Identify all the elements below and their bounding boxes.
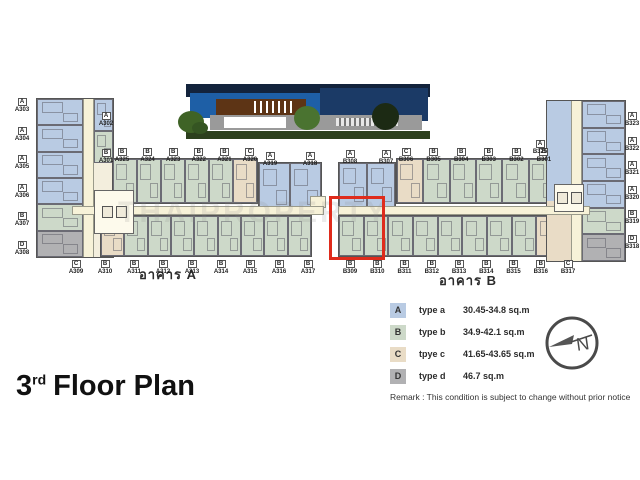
- unit-cell: [37, 231, 83, 257]
- unit-type-badge: B: [246, 260, 255, 268]
- unit-cell: [185, 159, 209, 203]
- unit-cell: [582, 128, 625, 155]
- unit-number: B308: [343, 159, 357, 165]
- unit-type-badge: B: [220, 148, 229, 156]
- unit-tag: C A309: [66, 260, 86, 275]
- unit-number: B309: [343, 269, 357, 275]
- elevator-icon: [571, 192, 582, 204]
- building-b-bottom-unit-tags: B B309 B B310 B B311 B B312: [340, 260, 578, 275]
- unit-number: A314: [214, 269, 228, 275]
- unit-tag: B B302: [506, 148, 526, 163]
- unit-type-badge: A: [536, 140, 545, 148]
- unit-number: B305: [426, 157, 440, 163]
- unit-cell: [423, 159, 449, 203]
- unit-cell: [502, 159, 528, 203]
- unit-type-badge: B: [194, 148, 203, 156]
- unit-number: A320: [243, 157, 257, 163]
- unit-tag: B A312: [153, 260, 173, 275]
- compass-north-icon: N: [543, 314, 601, 372]
- unit-number: B321: [625, 170, 639, 176]
- unit-number: B317: [561, 269, 575, 275]
- unit-type-badge: C: [245, 148, 254, 156]
- unit-type-badge: B: [429, 148, 438, 156]
- unit-tag: B B319: [622, 210, 640, 225]
- unit-tag: A B308: [340, 150, 360, 165]
- unit-number: B325: [533, 149, 547, 155]
- unit-type-badge: B: [101, 260, 110, 268]
- legend-color-swatch: D: [390, 369, 406, 384]
- unit-number: A322: [192, 157, 206, 163]
- unit-number: B313: [452, 269, 466, 275]
- legend-size-range: 30.45-34.8 sq.m: [463, 305, 530, 315]
- unit-type-badge: A: [266, 152, 275, 160]
- unit-number: B322: [625, 146, 639, 152]
- building-b-east-units: [582, 101, 625, 261]
- unit-tag: B A325: [112, 148, 132, 163]
- legend-type-label: type d: [419, 371, 463, 381]
- tree-icon: [294, 106, 320, 130]
- unit-tag: B A311: [124, 260, 144, 275]
- unit-cell: [194, 216, 217, 256]
- unit-cell: [37, 152, 83, 178]
- unit-number: A308: [15, 250, 29, 256]
- unit-number: A318: [303, 161, 317, 167]
- unit-tag: B B316: [531, 260, 551, 275]
- unit-type-badge: A: [102, 112, 111, 120]
- bush-icon: [192, 122, 208, 134]
- unit-cell: [288, 216, 311, 256]
- unit-cell: [582, 154, 625, 181]
- unit-type-badge: C: [402, 148, 411, 156]
- corridor: [571, 101, 582, 261]
- unit-type-badge: B: [427, 260, 436, 268]
- unit-tag: C B317: [558, 260, 578, 275]
- unit-cell: [476, 159, 502, 203]
- unit-number: B307: [379, 159, 393, 165]
- unit-type-badge: B: [304, 260, 313, 268]
- unit-tag: A A319: [260, 152, 280, 167]
- unit-cell: [218, 216, 241, 256]
- unit-tag: A A305: [12, 155, 32, 170]
- unit-type-badge: B: [400, 260, 409, 268]
- unit-tag: B A324: [138, 148, 158, 163]
- unit-number: B310: [370, 269, 384, 275]
- legend-type-label: tpye c: [419, 349, 463, 359]
- unit-tag: A A306: [12, 184, 32, 199]
- building-b-wing-right-unit-tags: A B323 A B322 A B321 A B320: [622, 112, 640, 250]
- unit-type-badge: B: [455, 260, 464, 268]
- unit-number: B301: [537, 157, 551, 163]
- unit-tag: A A318: [300, 152, 320, 167]
- legend-row: B type b 34.9-42.1 sq.m: [390, 323, 550, 341]
- svg-text:N: N: [575, 333, 591, 355]
- unit-number: B319: [625, 219, 639, 225]
- unit-cell: [241, 216, 264, 256]
- unit-cell: [37, 99, 83, 125]
- unit-number: B318: [625, 244, 639, 250]
- unit-number: B320: [625, 195, 639, 201]
- unit-cell: [233, 159, 257, 203]
- floor-number: 3: [16, 370, 32, 402]
- unit-type-badge: B: [536, 260, 545, 268]
- building-a-elevator-core: [94, 190, 134, 234]
- unit-cell: [413, 216, 438, 256]
- building-b-vertical-wing: [546, 100, 626, 262]
- unit-cell: [582, 101, 625, 128]
- unit-tag: A B323: [622, 112, 640, 127]
- elevator-icon: [116, 206, 127, 218]
- unit-number: A315: [243, 269, 257, 275]
- unit-type-badge: B: [484, 148, 493, 156]
- unit-type-badge: B: [217, 260, 226, 268]
- building-b-top-row-units: [396, 158, 556, 204]
- legend-size-range: 34.9-42.1 sq.m: [463, 327, 525, 337]
- unit-cell: [37, 178, 83, 204]
- unit-cell: [148, 216, 171, 256]
- unit-tag: B B312: [422, 260, 442, 275]
- unit-tag: B B313: [449, 260, 469, 275]
- unit-type-badge: B: [628, 210, 637, 218]
- unit-number: A319: [263, 161, 277, 167]
- unit-type-badge: B: [169, 148, 178, 156]
- unit-type-badge: A: [18, 155, 27, 163]
- unit-cell: [259, 163, 290, 211]
- building-b-elevator-core: [554, 184, 584, 212]
- unit-type-badge: A: [382, 150, 391, 158]
- unit-tag: A B321: [622, 161, 640, 176]
- unit-number: A307: [15, 221, 29, 227]
- unit-type-badge: B: [18, 212, 27, 220]
- unit-number: A317: [301, 269, 315, 275]
- unit-type-badge: A: [346, 150, 355, 158]
- unit-tag: B B304: [451, 148, 471, 163]
- unit-type-badge: B: [482, 260, 491, 268]
- unit-type-badge: A: [628, 186, 637, 194]
- unit-type-badge: A: [306, 152, 315, 160]
- unit-number: A304: [15, 136, 29, 142]
- building-b-end-unit-tags: A B308 A B307: [340, 150, 396, 165]
- unit-number: A302: [99, 121, 113, 127]
- unit-number: B303: [482, 157, 496, 163]
- unit-tag: B B311: [395, 260, 415, 275]
- unit-number: A305: [15, 164, 29, 170]
- unit-tag: B B303: [479, 148, 499, 163]
- building-a-end-unit-tags: A A319 A A318: [260, 152, 320, 167]
- unit-number: A313: [185, 269, 199, 275]
- unit-cell: [209, 159, 233, 203]
- unit-type-badge: B: [512, 148, 521, 156]
- unit-tag: A B322: [622, 137, 640, 152]
- unit-cell: [171, 216, 194, 256]
- unit-number: B316: [534, 269, 548, 275]
- unit-cell: [582, 181, 625, 208]
- unit-number: A324: [140, 157, 154, 163]
- page-title: 3rdFloor Plan: [16, 370, 195, 403]
- unit-type-badge: B: [102, 149, 111, 157]
- unit-tag: B A310: [95, 260, 115, 275]
- legend-color-swatch: C: [390, 347, 406, 362]
- unit-number: A310: [98, 269, 112, 275]
- unit-type-badge: B: [159, 260, 168, 268]
- unit-number: A325: [115, 157, 129, 163]
- unit-cell: [512, 216, 537, 256]
- unit-tag: B A323: [163, 148, 183, 163]
- floor-plan-text: Floor Plan: [53, 370, 195, 402]
- unit-tag: B B310: [367, 260, 387, 275]
- unit-tag: B A307: [12, 212, 32, 227]
- legend-row: D type d 46.7 sq.m: [390, 367, 550, 385]
- unit-tag: B B305: [424, 148, 444, 163]
- unit-number: B314: [479, 269, 493, 275]
- unit-tag: B A317: [298, 260, 318, 275]
- floor-plan-page: THAIPROPERTY A A303 A A304 A A305: [0, 0, 640, 480]
- rendering-pergola: [254, 101, 296, 113]
- rendering-hedge: [186, 131, 430, 139]
- unit-cell: [397, 159, 423, 203]
- unit-tag: B B309: [340, 260, 360, 275]
- legend-size-range: 41.65-43.65 sq.m: [463, 349, 535, 359]
- unit-type-badge: B: [346, 260, 355, 268]
- legend-type-label: type b: [419, 327, 463, 337]
- unit-number: A311: [127, 269, 141, 275]
- unit-type-badge: C: [564, 260, 573, 268]
- unit-cell: [487, 216, 512, 256]
- unit-type-badge: C: [72, 260, 81, 268]
- unit-type-badge: B: [143, 148, 152, 156]
- unit-type-badge: A: [18, 98, 27, 106]
- unit-cell: [137, 159, 161, 203]
- unit-type-badge: A: [18, 127, 27, 135]
- unit-tag: A B325: [530, 140, 550, 155]
- unit-tag: B B314: [476, 260, 496, 275]
- remark-text: Remark : This condition is subject to ch…: [390, 392, 630, 402]
- unit-number: A312: [156, 269, 170, 275]
- unit-cell: [37, 125, 83, 151]
- unit-type-badge: D: [628, 235, 637, 243]
- rendering-pool-deck: [224, 117, 286, 128]
- unit-cell: [582, 234, 625, 261]
- unit-number: A306: [15, 193, 29, 199]
- unit-tag: B A322: [189, 148, 209, 163]
- unit-type-badge: B: [509, 260, 518, 268]
- building-a-top-unit-tags: B A325 B A324 B A323 B A322: [112, 148, 260, 163]
- legend-row: C tpye c 41.65-43.65 sq.m: [390, 345, 550, 363]
- legend-row: A type a 30.45-34.8 sq.m: [390, 301, 550, 319]
- building-aerial-rendering: [186, 84, 430, 139]
- unit-type-badge: B: [275, 260, 284, 268]
- unit-tag: B A313: [182, 260, 202, 275]
- unit-type-badge: A: [628, 112, 637, 120]
- unit-number: B315: [506, 269, 520, 275]
- building-a-left-unit-tags: A A303 A A304 A A305 A A306: [12, 98, 32, 256]
- unit-tag: B A314: [211, 260, 231, 275]
- unit-tag: B B315: [504, 260, 524, 275]
- elevator-icon: [557, 192, 568, 204]
- unit-number: B323: [625, 121, 639, 127]
- unit-cell: [438, 216, 463, 256]
- selected-unit-highlight[interactable]: [329, 196, 385, 260]
- unit-tag: D B318: [622, 235, 640, 250]
- unit-type-badge: B: [130, 260, 139, 268]
- unit-tag: D A308: [12, 241, 32, 256]
- unit-cell: [161, 159, 185, 203]
- unit-number: B311: [397, 269, 411, 275]
- building-b-wing-left-unit-tags: A B325: [530, 140, 550, 155]
- unit-number: B312: [425, 269, 439, 275]
- legend-type-label: type a: [419, 305, 463, 315]
- unit-type-badge: B: [188, 260, 197, 268]
- unit-cell: [450, 159, 476, 203]
- unit-cell: [264, 216, 287, 256]
- unit-type-badge: B: [118, 148, 127, 156]
- building-a-bottom-unit-tags: C A309 B A310 B A311 B A312: [66, 260, 318, 275]
- unit-cell: [462, 216, 487, 256]
- unit-number: A321: [217, 157, 231, 163]
- unit-tag: B A316: [269, 260, 289, 275]
- unit-tag: A B307: [376, 150, 396, 165]
- unit-tag: C B306: [396, 148, 416, 163]
- legend-color-swatch: B: [390, 325, 406, 340]
- legend-size-range: 46.7 sq.m: [463, 371, 504, 381]
- unit-number: A323: [166, 157, 180, 163]
- unit-tag: A A303: [12, 98, 32, 113]
- unit-tag: A A302: [96, 112, 116, 127]
- legend-color-swatch: A: [390, 303, 406, 318]
- unit-type-badge: B: [373, 260, 382, 268]
- unit-type-badge: B: [457, 148, 466, 156]
- floor-ordinal-suffix: rd: [32, 371, 46, 387]
- unit-number: B302: [509, 157, 523, 163]
- unit-number: B304: [454, 157, 468, 163]
- elevator-icon: [102, 206, 113, 218]
- unit-type-badge: D: [18, 241, 27, 249]
- unit-number: A303: [15, 107, 29, 113]
- unit-cell: [388, 216, 413, 256]
- corridor: [83, 99, 94, 257]
- tree-icon: [372, 103, 399, 130]
- unit-tag: B A315: [240, 260, 260, 275]
- unit-number: A316: [272, 269, 286, 275]
- unit-type-badge: A: [18, 184, 27, 192]
- unit-type-badge: A: [628, 161, 637, 169]
- unit-number: A309: [69, 269, 83, 275]
- unit-tag: A A304: [12, 127, 32, 142]
- unit-type-legend: A type a 30.45-34.8 sq.m B type b 34.9-4…: [390, 301, 550, 389]
- unit-type-badge: A: [628, 137, 637, 145]
- unit-tag: A B320: [622, 186, 640, 201]
- building-b-west-strip: [547, 101, 571, 261]
- unit-tag: B A321: [214, 148, 234, 163]
- building-a-west-units: [37, 99, 83, 257]
- unit-number: B306: [399, 157, 413, 163]
- unit-tag: C A320: [240, 148, 260, 163]
